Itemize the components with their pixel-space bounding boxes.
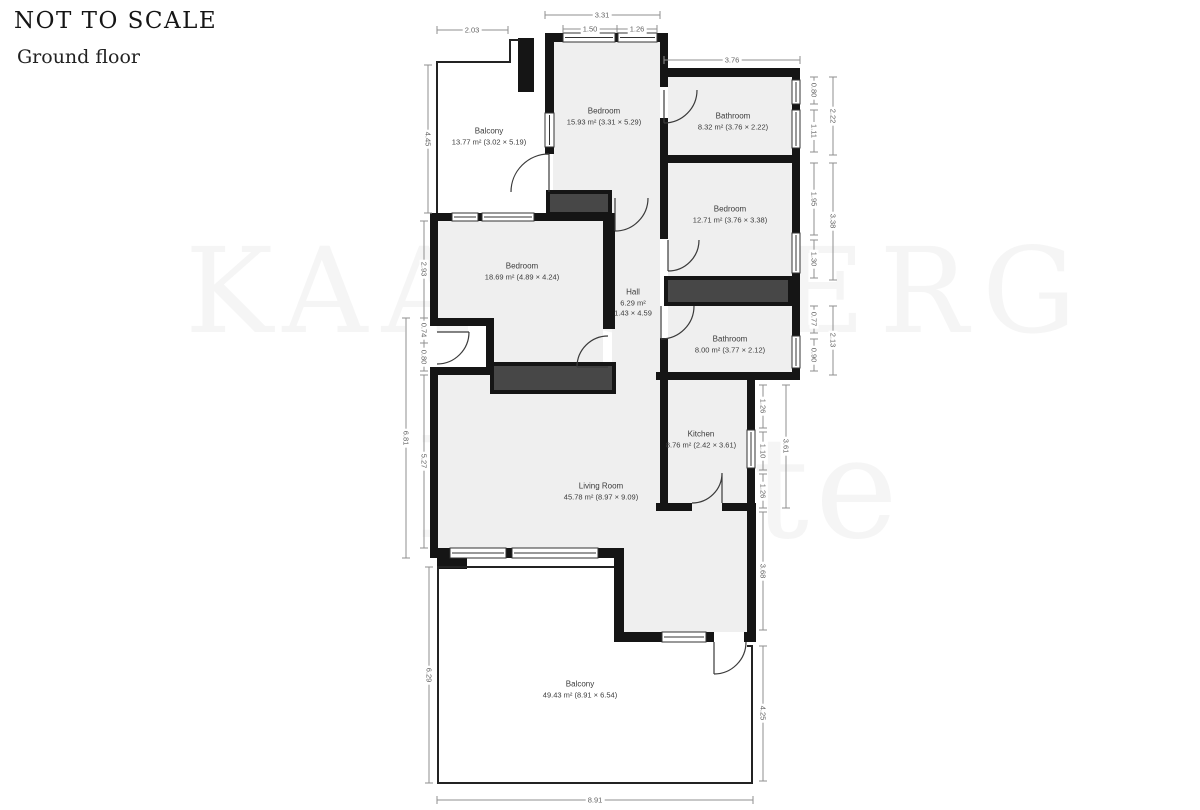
dim-label: 8.91 bbox=[586, 796, 605, 805]
dim-label: 1.26 bbox=[759, 397, 768, 416]
dim-label: 4.25 bbox=[759, 704, 768, 723]
dim-label: 1.10 bbox=[759, 442, 768, 461]
room-label-balcony-lower: Balcony 49.43 m² (8.91 × 6.54) bbox=[543, 680, 617, 701]
room-size: 1.43 × 4.59 bbox=[614, 308, 652, 318]
room-area: 12.71 m² (3.76 × 3.38) bbox=[693, 215, 767, 225]
room-area: 49.43 m² (8.91 × 6.54) bbox=[543, 690, 617, 700]
room-area: 8.32 m² (3.76 × 2.22) bbox=[698, 122, 768, 132]
room-label-bedroom-top: Bedroom 15.93 m² (3.31 × 5.29) bbox=[567, 107, 641, 128]
floor-label: Ground floor bbox=[17, 46, 140, 68]
scale-note: NOT TO SCALE bbox=[14, 8, 217, 34]
room-name: Bedroom bbox=[567, 107, 641, 118]
room-name: Hall bbox=[614, 287, 652, 298]
room-name: Balcony bbox=[543, 680, 617, 691]
room-label-balcony-upper: Balcony 13.77 m² (3.02 × 5.19) bbox=[452, 127, 526, 148]
dim-label: 5.27 bbox=[420, 452, 429, 471]
room-name: Bedroom bbox=[693, 205, 767, 216]
room-name: Living Room bbox=[564, 482, 638, 493]
dim-label: 0.90 bbox=[810, 346, 819, 365]
room-label-bathroom-lower: Bathroom 8.00 m² (3.77 × 2.12) bbox=[695, 335, 765, 356]
dim-label: 1.95 bbox=[810, 190, 819, 209]
dim-label: 3.76 bbox=[723, 56, 742, 65]
dim-label: 0.80 bbox=[810, 81, 819, 100]
dim-label: 1.26 bbox=[759, 482, 768, 501]
dim-label: 3.31 bbox=[593, 11, 612, 20]
room-name: Bathroom bbox=[698, 112, 768, 123]
dim-label: 1.26 bbox=[628, 25, 647, 34]
dim-label: 0.80 bbox=[420, 348, 429, 367]
room-area: 8.76 m² (2.42 × 3.61) bbox=[666, 440, 736, 450]
dim-label: 2.22 bbox=[829, 107, 838, 126]
dim-label: 2.93 bbox=[420, 260, 429, 279]
room-area: 15.93 m² (3.31 × 5.29) bbox=[567, 117, 641, 127]
room-area: 18.69 m² (4.89 × 4.24) bbox=[485, 272, 559, 282]
room-name: Bathroom bbox=[695, 335, 765, 346]
room-label-bathroom-top: Bathroom 8.32 m² (3.76 × 2.22) bbox=[698, 112, 768, 133]
dim-label: 3.38 bbox=[829, 212, 838, 231]
room-label-living-room: Living Room 45.78 m² (8.97 × 9.09) bbox=[564, 482, 638, 503]
room-name: Balcony bbox=[452, 127, 526, 138]
dim-label: 1.30 bbox=[810, 250, 819, 269]
dim-label: 6.81 bbox=[402, 429, 411, 448]
room-label-hall: Hall 6.29 m² 1.43 × 4.59 bbox=[614, 287, 652, 318]
dim-label: 2.13 bbox=[829, 331, 838, 350]
dim-label: 6.29 bbox=[425, 666, 434, 685]
room-area: 6.29 m² bbox=[614, 298, 652, 308]
dim-label: 1.11 bbox=[810, 122, 819, 140]
dim-label: 0.77 bbox=[810, 310, 819, 329]
room-label-bedroom-left: Bedroom 18.69 m² (4.89 × 4.24) bbox=[485, 262, 559, 283]
room-area: 45.78 m² (8.97 × 9.09) bbox=[564, 492, 638, 502]
dim-label: 3.68 bbox=[759, 562, 768, 581]
room-area: 13.77 m² (3.02 × 5.19) bbox=[452, 137, 526, 147]
dim-label: 3.61 bbox=[782, 437, 791, 456]
room-area: 8.00 m² (3.77 × 2.12) bbox=[695, 345, 765, 355]
dim-label: 2.03 bbox=[463, 26, 482, 35]
room-name: Bedroom bbox=[485, 262, 559, 273]
room-name: Kitchen bbox=[666, 430, 736, 441]
dim-label: 0.74 bbox=[420, 321, 429, 340]
room-label-kitchen: Kitchen 8.76 m² (2.42 × 3.61) bbox=[666, 430, 736, 451]
dim-label: 1.50 bbox=[581, 25, 600, 34]
room-label-bedroom-right: Bedroom 12.71 m² (3.76 × 3.38) bbox=[693, 205, 767, 226]
dim-label: 4.45 bbox=[424, 130, 433, 149]
